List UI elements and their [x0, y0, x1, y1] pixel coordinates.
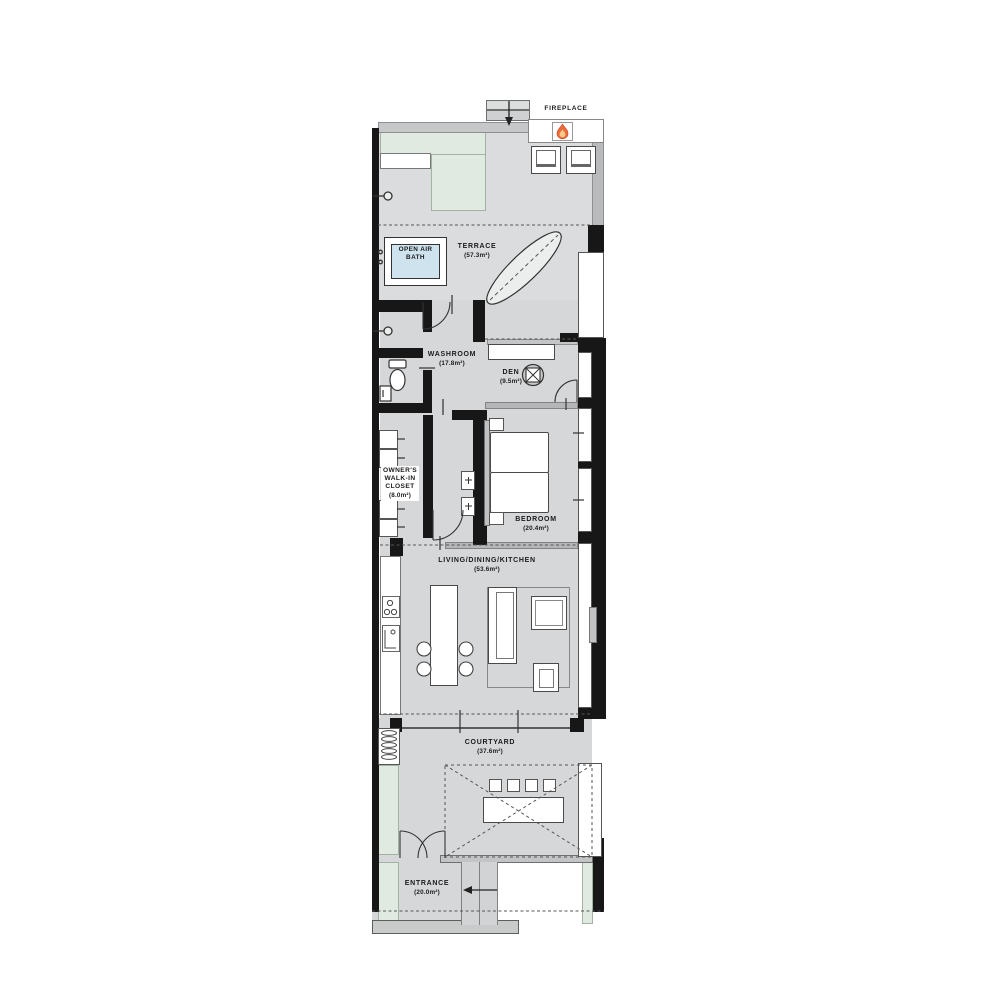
den-desk: [488, 344, 555, 360]
chimney-bar-1: [486, 100, 530, 110]
fireplace-firebox: [552, 122, 573, 141]
bench-cushion-2: [507, 779, 520, 792]
fireplace-label: FIREPLACE: [544, 105, 587, 113]
window-bay-bedroom-1: [578, 408, 592, 462]
entrance-step-1: [461, 862, 480, 925]
armchair-seat: [539, 669, 554, 688]
closet-inner-wall: [423, 415, 433, 538]
closet-label: OWNER'S WALK-IN CLOSET (8.0m²): [381, 466, 419, 501]
lounge-chair-1: [531, 146, 561, 174]
den-sliding-track: [485, 402, 578, 409]
bench-cushion-3: [525, 779, 538, 792]
bed-mattress-1: [490, 432, 549, 473]
wardrobe-unit-4: [379, 519, 398, 537]
vanity-sink-2: [461, 497, 475, 516]
floor-plan-canvas: FIREPLACE OPEN AIR BATH TERRACE (57.3m²)…: [0, 0, 1000, 1000]
entrance-planting-right: [582, 860, 593, 924]
entrance-label: ENTRANCE (20.0m²): [405, 880, 450, 897]
lounge-chair-2: [566, 146, 596, 174]
vanity-sink-1: [461, 471, 475, 490]
courtyard-top-right-stub: [570, 718, 584, 732]
terrace-bench: [380, 153, 431, 169]
wardrobe-unit-3: [379, 500, 398, 519]
stove-icon: [382, 596, 400, 618]
armchair: [533, 663, 559, 692]
kitchen-top-wall-stub: [390, 538, 403, 556]
west-wall: [372, 128, 379, 912]
courtyard-east-bay: [578, 763, 602, 857]
drying-rack-icon: [378, 728, 400, 765]
nightstand-1: [489, 418, 504, 431]
shower-toilet-wall: [372, 348, 423, 358]
living-table: [531, 596, 567, 630]
sofa-seat: [496, 592, 514, 659]
toilet-closet-wall: [372, 403, 432, 413]
terrace-label: TERRACE (57.3m²): [458, 243, 497, 260]
living-side-door: [589, 607, 597, 643]
open-air-bath-label: OPEN AIR BATH: [399, 246, 433, 262]
washroom-label: WASHROOM (17.8m²): [428, 351, 476, 368]
den-label: DEN (9.5m²): [500, 369, 522, 386]
bedroom-sliding-track: [445, 542, 578, 549]
courtyard-label: COURTYARD (37.6m²): [465, 739, 515, 756]
entrance-step-2: [480, 862, 498, 925]
lounge-chair-2-seat: [571, 150, 591, 167]
courtyard-bench: [483, 797, 564, 823]
den-top-right-stub: [560, 333, 578, 342]
sink-icon: [382, 625, 400, 652]
wardrobe-unit-1: [379, 430, 398, 449]
terrace-planting-right: [431, 154, 486, 211]
bench-cushion-4: [543, 779, 556, 792]
ldk-label: LIVING/DINING/KITCHEN (53.6m²): [438, 557, 536, 574]
nightstand-2: [489, 512, 504, 525]
window-bay-bedroom-2: [578, 468, 592, 532]
terrace-washroom-wall: [372, 300, 423, 312]
terrace-top-wall: [378, 122, 540, 133]
lounge-chair-1-seat: [536, 150, 556, 167]
sofa: [488, 587, 517, 664]
window-bay-terrace: [578, 252, 604, 338]
courtyard-planting-left: [378, 765, 399, 855]
hall-den-wall-stub: [473, 300, 485, 342]
entrance-planting-left: [378, 862, 399, 924]
dining-table: [430, 585, 458, 686]
bedroom-label: BEDROOM (20.4m²): [515, 516, 556, 533]
washroom-inner-wall-top: [423, 300, 432, 332]
east-wall-top: [588, 225, 604, 252]
bed-mattress-2: [490, 472, 549, 513]
chimney-bar-2: [486, 110, 530, 121]
living-table-top: [535, 600, 563, 626]
window-bay-den: [578, 352, 592, 398]
bench-cushion-1: [489, 779, 502, 792]
